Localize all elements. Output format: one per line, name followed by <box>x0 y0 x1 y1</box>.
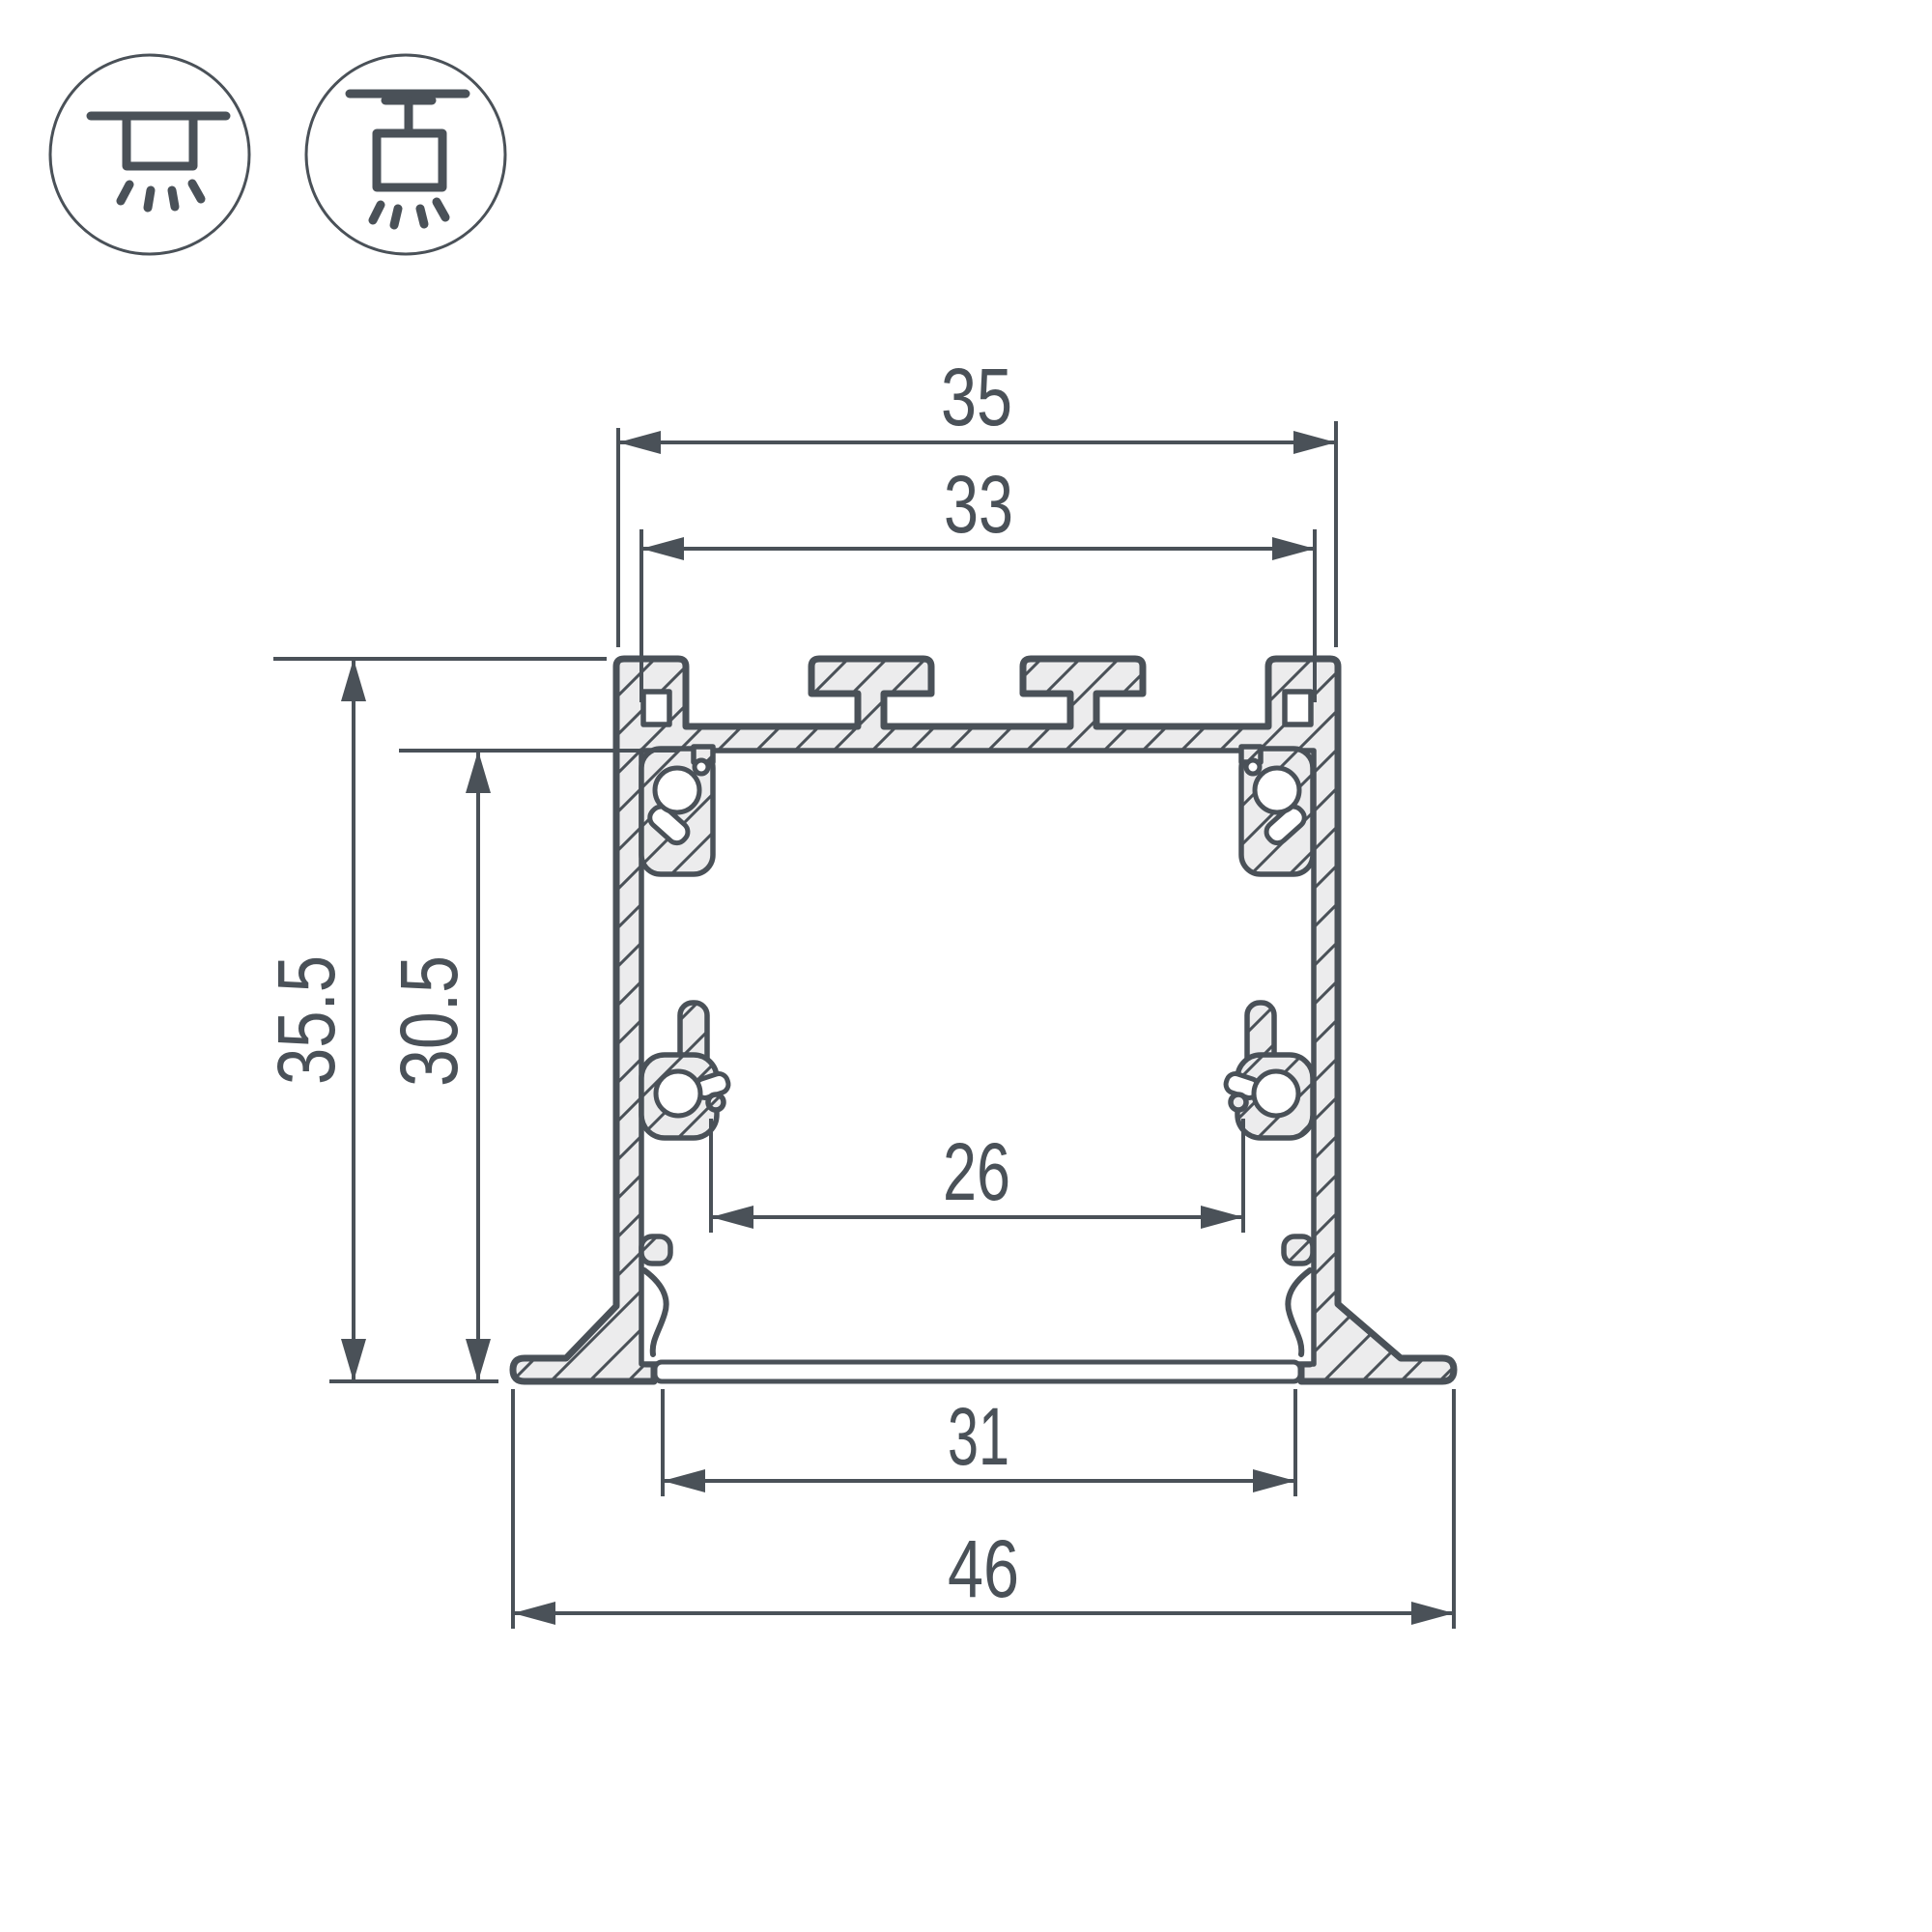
retainer-nub-left <box>641 1236 670 1264</box>
retainer-nub-right <box>1284 1236 1313 1264</box>
cover-slot-left <box>643 692 669 724</box>
profile-cross-section <box>513 659 1454 1381</box>
dimension-label: 26 <box>943 1126 1010 1217</box>
light-rays <box>121 184 201 208</box>
profile-drawing: 35 33 35.5 30.5 26 <box>0 0 1932 1932</box>
dimension-label: 35 <box>941 352 1012 442</box>
dimension-label: 31 <box>948 1391 1009 1482</box>
dimension-top-inner-width: 33 <box>641 459 1315 702</box>
dimension-label: 33 <box>944 459 1013 550</box>
light-rays <box>373 202 445 225</box>
dimension-label: 30.5 <box>384 955 474 1087</box>
recessed-box <box>127 118 193 166</box>
surface-mount-icon <box>306 55 505 254</box>
recessed-mount-icon <box>50 55 249 254</box>
icon-circle <box>306 55 505 254</box>
profile-cavity <box>641 751 1314 1364</box>
dimension-label: 35.5 <box>261 955 352 1085</box>
screw-boss-top-right <box>1241 747 1313 874</box>
diffuser-plate <box>655 1362 1300 1381</box>
dimension-bottom-opening-width: 31 <box>663 1389 1295 1496</box>
cover-slot-right <box>1285 692 1311 724</box>
surface-box <box>377 133 442 187</box>
icon-circle <box>50 55 249 254</box>
dimension-label: 46 <box>948 1523 1019 1614</box>
screw-boss-top-left <box>641 747 713 874</box>
technical-drawing-page: 35 33 35.5 30.5 26 <box>0 0 1932 1932</box>
